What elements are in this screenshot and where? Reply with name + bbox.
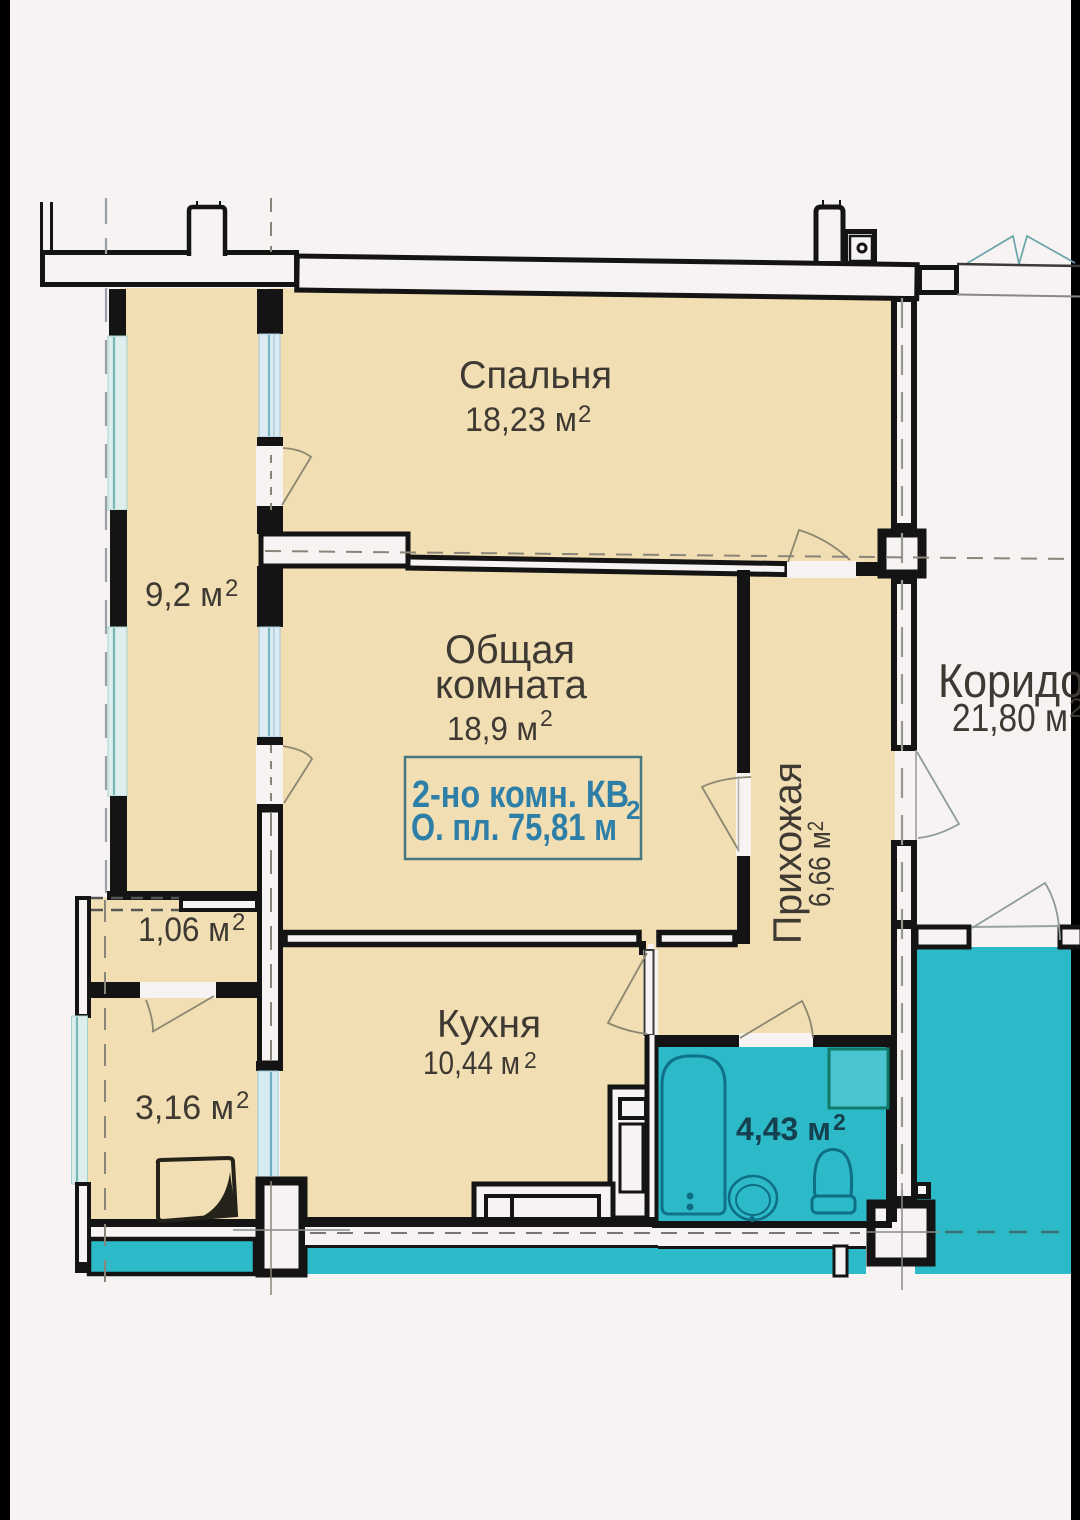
svg-text:2: 2 [1069,693,1080,723]
svg-text:О. пл. 75,81 м: О. пл. 75,81 м [411,807,617,849]
svg-text:Кухня: Кухня [437,1003,541,1046]
svg-text:2: 2 [225,575,238,602]
svg-text:4,43 м: 4,43 м [736,1111,831,1147]
svg-text:2: 2 [833,1109,846,1135]
svg-text:комната: комната [435,663,588,707]
svg-text:21,80 м: 21,80 м [952,697,1068,740]
svg-text:6,66 м2: 6,66 м2 [802,821,837,907]
svg-text:1,06 м: 1,06 м [138,911,230,949]
svg-text:3,16 м: 3,16 м [135,1089,234,1127]
svg-text:2: 2 [626,795,640,825]
svg-text:9,2 м: 9,2 м [145,576,223,614]
svg-text:2: 2 [236,1087,249,1114]
svg-text:2: 2 [540,705,553,731]
svg-text:18,9 м: 18,9 м [447,710,538,747]
svg-text:2: 2 [232,909,245,936]
svg-text:18,23 м: 18,23 м [465,401,577,439]
svg-text:2: 2 [578,401,591,428]
svg-text:2: 2 [524,1047,537,1073]
svg-text:Спальня: Спальня [459,354,612,397]
svg-text:10,44 м: 10,44 м [423,1045,520,1081]
